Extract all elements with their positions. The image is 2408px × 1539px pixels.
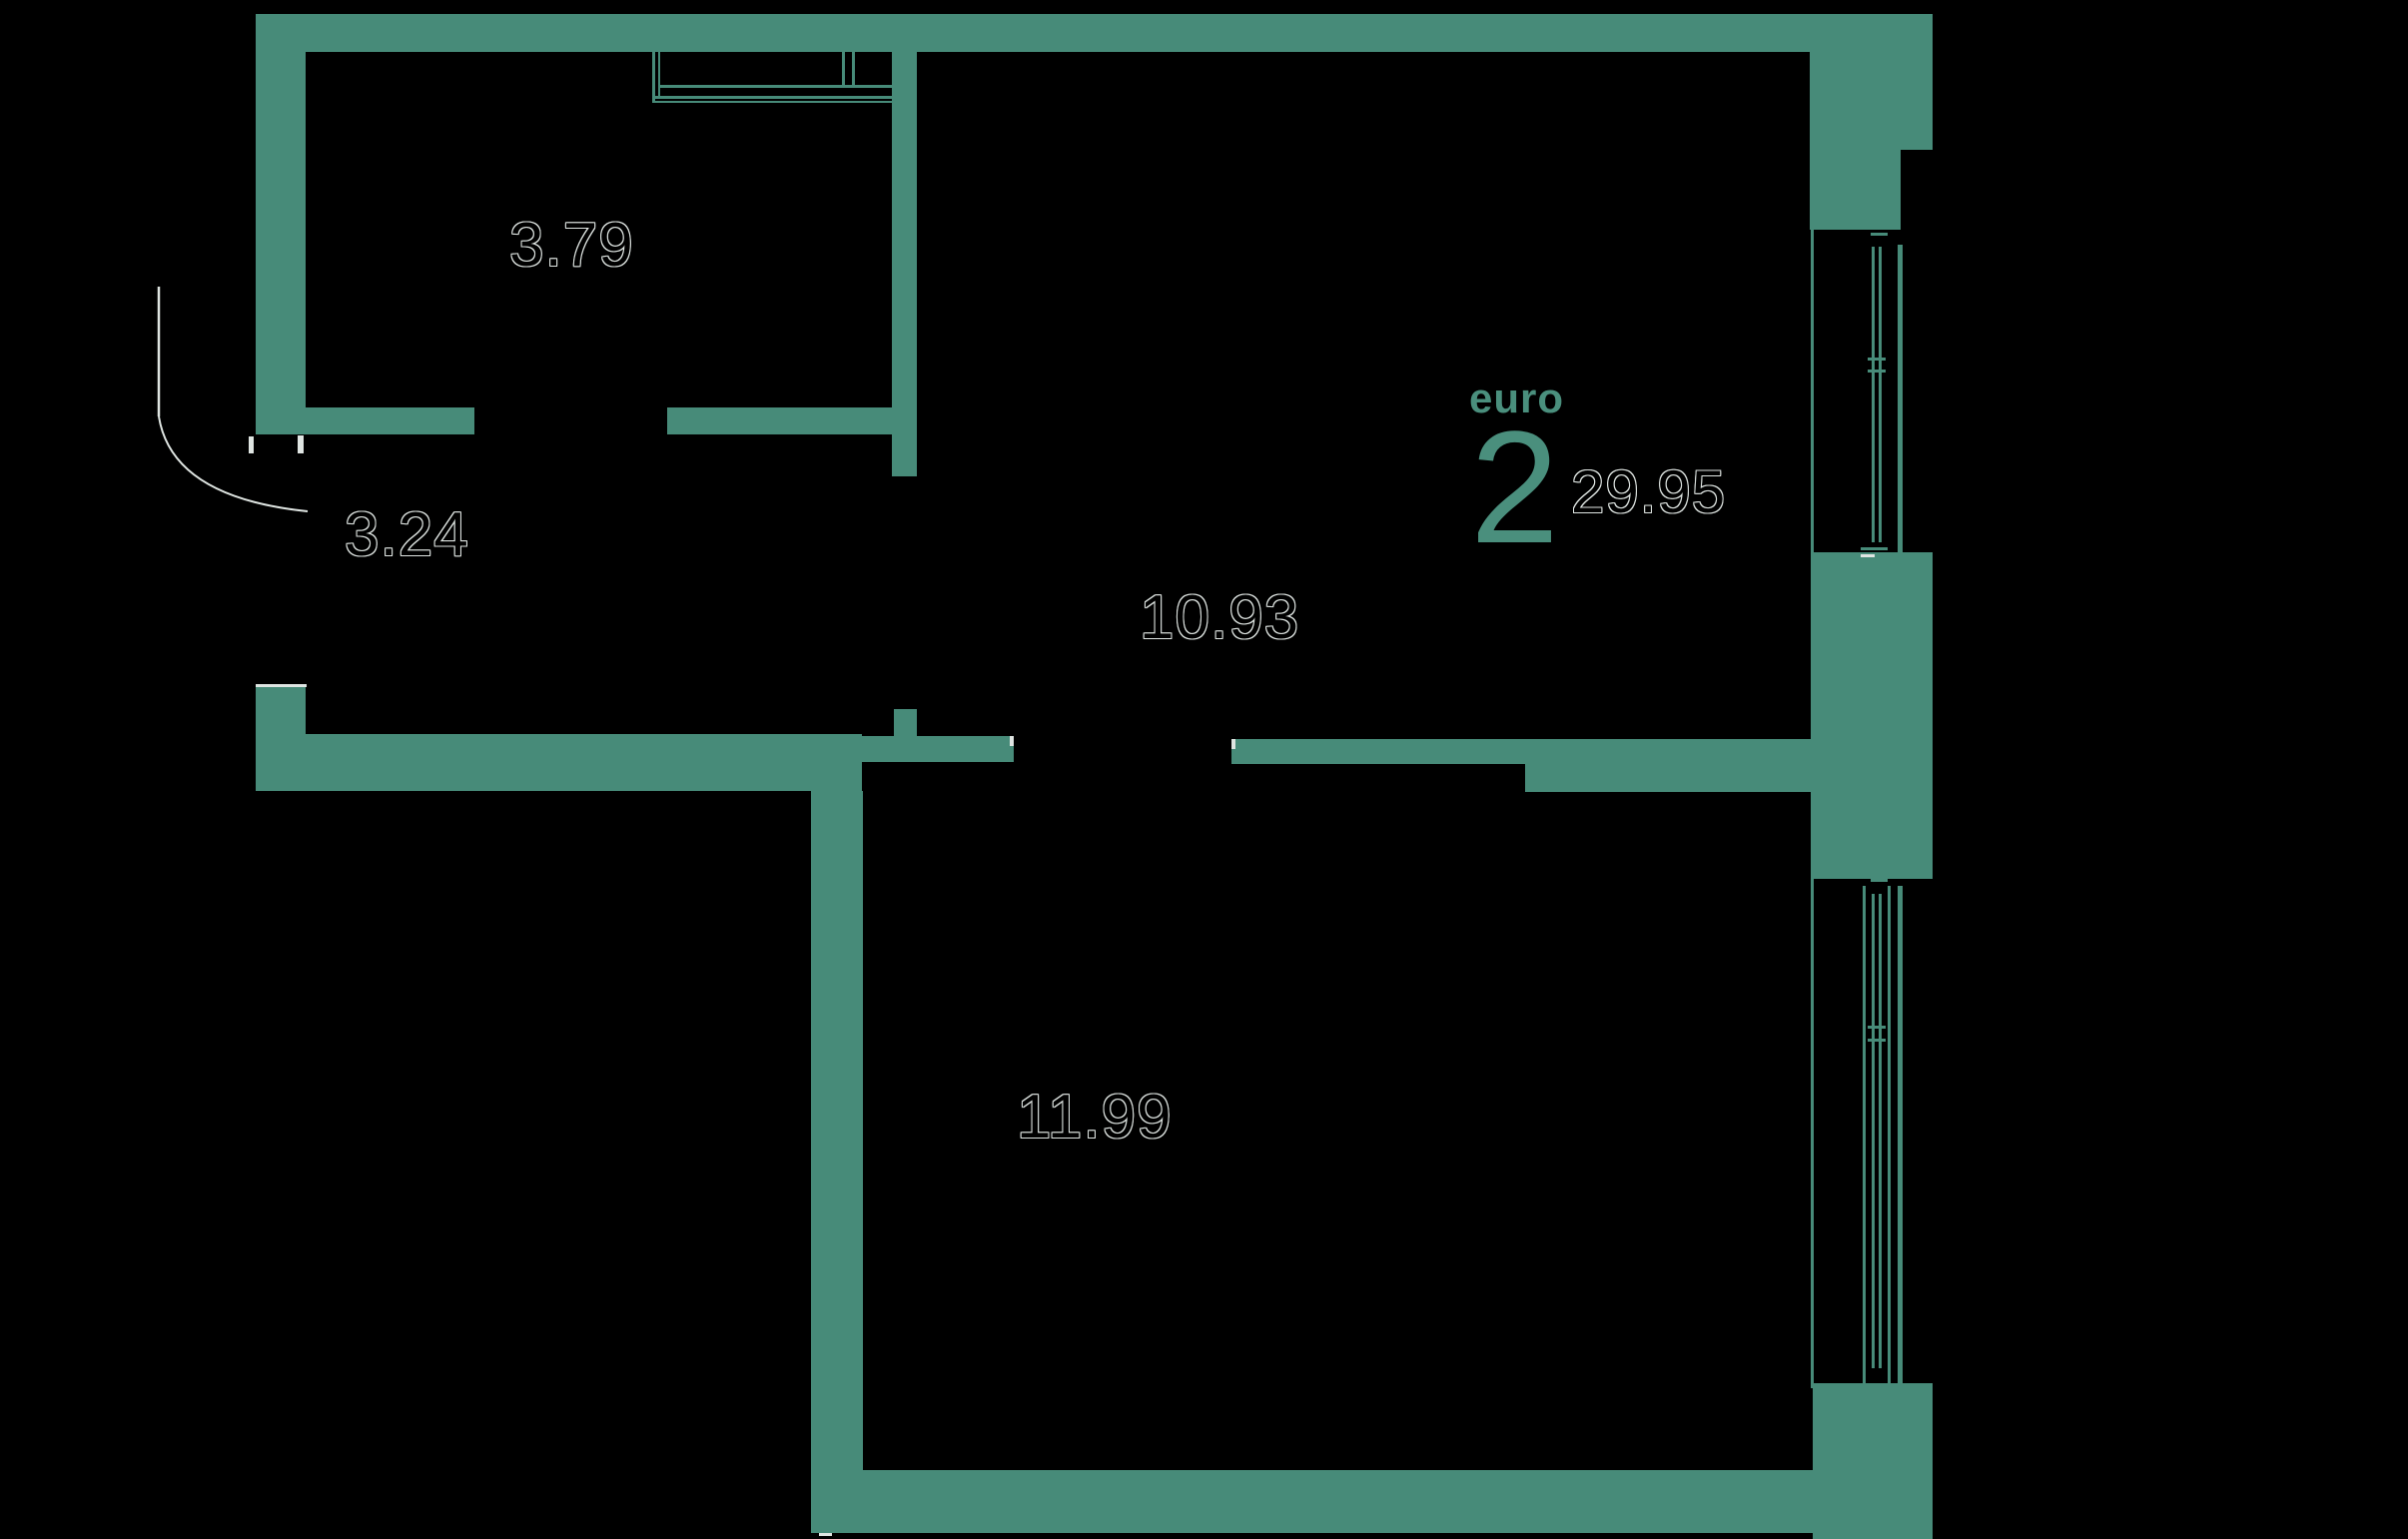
wall-right-mid-block xyxy=(1811,552,1933,879)
hall-doorway-tick xyxy=(1010,736,1014,746)
wall-room379-bottom-right xyxy=(667,407,892,434)
total-area-label: 29.95 xyxy=(1571,462,1726,522)
entrance-door-swing-icon xyxy=(100,270,360,529)
entrance-door-jamb-cap xyxy=(256,684,307,687)
floor-plan: { "colors":{"bg":"#000000","wall":"#478b… xyxy=(0,0,2408,1539)
bedroom-wall-end-tick xyxy=(819,1533,832,1536)
wall-bedroom-top-thin xyxy=(1231,739,1525,764)
area-label-bedroom: 11.99 xyxy=(1017,1087,1173,1149)
wall-bedroom-bottom xyxy=(863,1470,1813,1533)
area-label-hallway: 3.24 xyxy=(345,504,469,566)
wall-bedroom-left xyxy=(811,791,863,1533)
area-label-room-top-left: 3.79 xyxy=(509,215,634,277)
wall-hall-bottom-thick xyxy=(306,734,862,791)
wall-bottom-right-block xyxy=(1813,1383,1933,1539)
wall-central xyxy=(892,14,917,476)
wall-top-right-block-inner xyxy=(1810,150,1901,230)
bedroom-doorway-tick xyxy=(1231,739,1235,749)
wall-bedroom-top-thick xyxy=(1525,739,1811,792)
unit-type-number: 2 xyxy=(1470,407,1559,567)
wall-top-right-block-outer xyxy=(1810,14,1933,150)
wall-top xyxy=(256,14,1810,52)
area-label-kitchen-living: 10.93 xyxy=(1140,587,1299,649)
wall-hall-bottom-thin xyxy=(862,736,1014,762)
wall-central-stub xyxy=(894,709,917,739)
wall-left-lower xyxy=(256,685,306,791)
